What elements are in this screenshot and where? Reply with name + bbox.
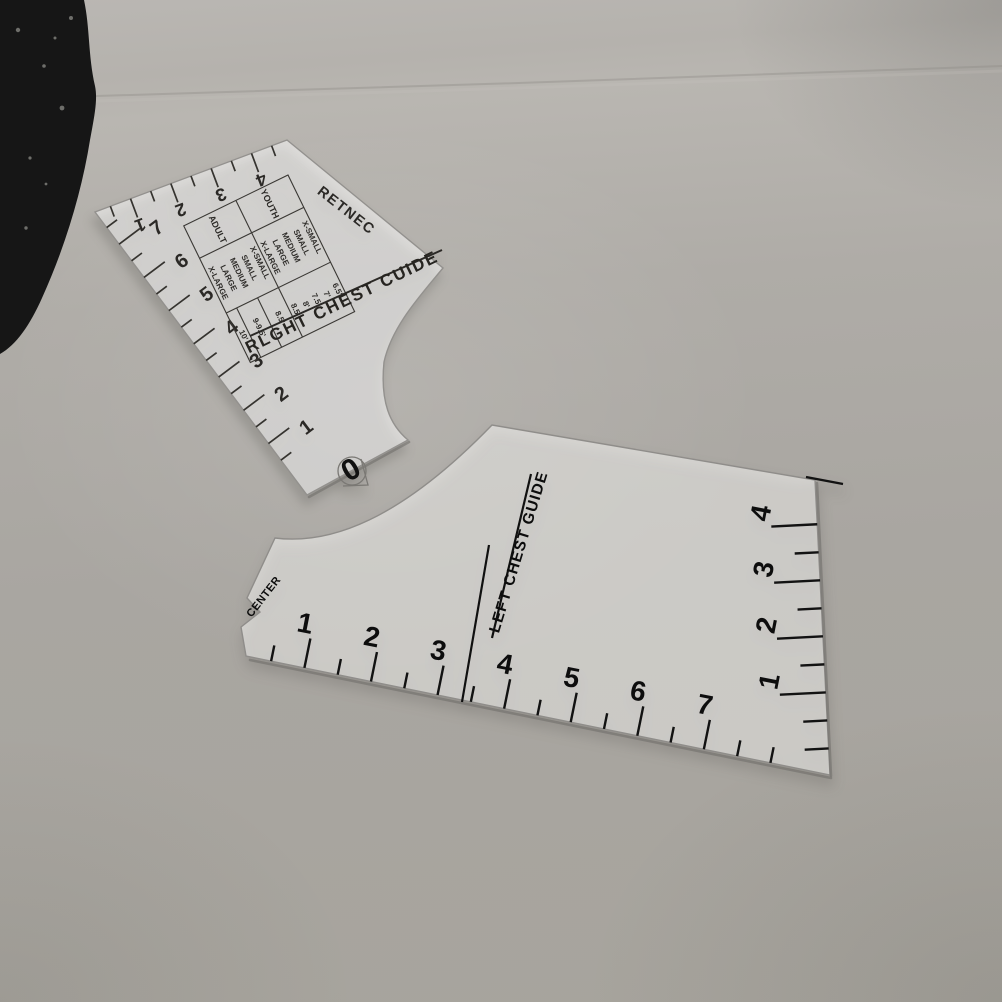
right-chest-ruler: 7654321 1234 YOUTHX-SMALLSMALLMEDIUMLARG… [95, 140, 443, 497]
tick-mark [798, 608, 822, 609]
backdrop-seam-highlight [0, 71, 1002, 104]
tick-mark [800, 664, 824, 665]
tick-mark [795, 552, 819, 553]
scene: 7654321 1234 YOUTHX-SMALLSMALLMEDIUMLARG… [0, 0, 1002, 1002]
dark-fabric-corner [0, 0, 96, 354]
backdrop-seam [0, 66, 1002, 99]
background [0, 0, 1002, 354]
product-photo: { "scene": { "backdrop_object": "dark-fa… [0, 0, 1002, 1002]
tick-mark [805, 748, 829, 749]
tick-mark [803, 720, 827, 721]
